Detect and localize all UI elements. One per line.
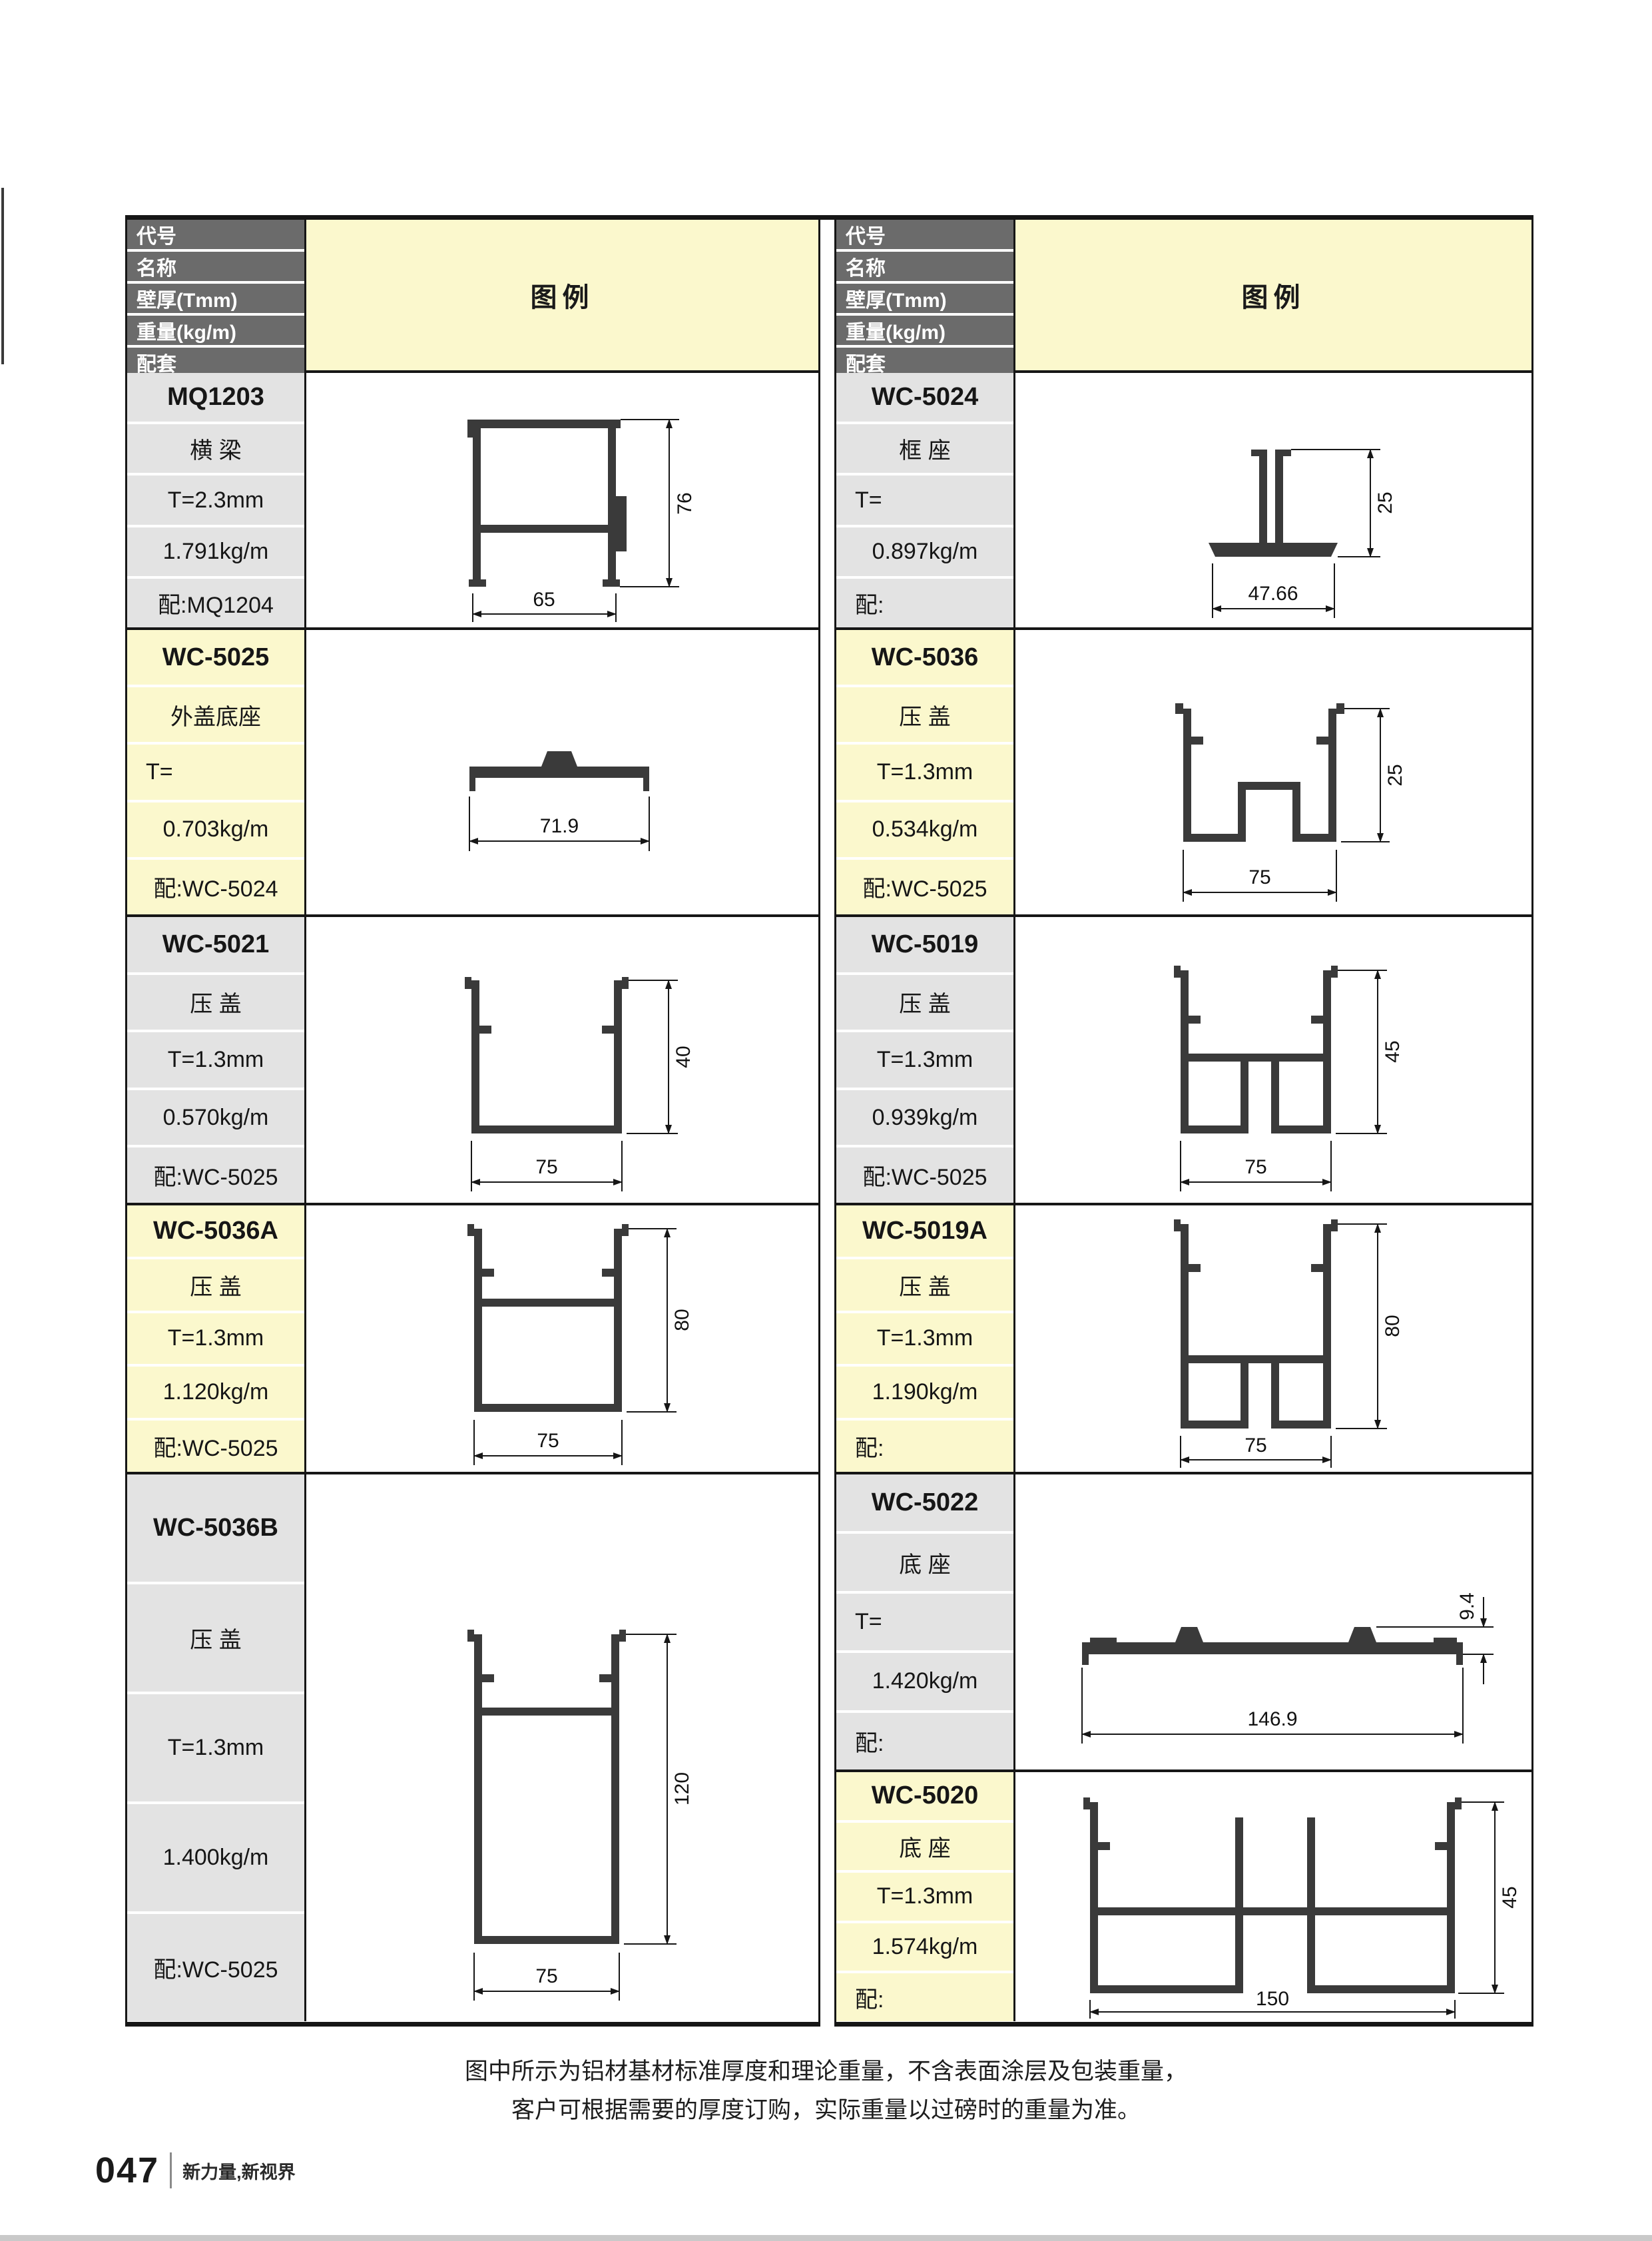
product-code: MQ1203 bbox=[127, 373, 304, 422]
product-row-wc5021: WC-5021 压 盖 T=1.3mm 0.570kg/m 配:WC-5025 … bbox=[127, 914, 818, 1203]
product-weight: 1.120kg/m bbox=[127, 1367, 304, 1418]
product-row-wc5019a: WC-5019A 压 盖 T=1.3mm 1.190kg/m 配: bbox=[836, 1203, 1531, 1472]
dim-height-label: 9.4 bbox=[1456, 1592, 1478, 1620]
header-code: 代号 bbox=[127, 220, 304, 249]
dim-height-label: 45 bbox=[1382, 1040, 1404, 1062]
dim-width-label: 71.9 bbox=[540, 815, 579, 837]
footnote-line-2: 客户可根据需要的厚度订购，实际重量以过磅时的重量为准。 bbox=[0, 2091, 1652, 2130]
spec-table-right: 代号 名称 壁厚(Tmm) 重量(kg/m) 配套 图例 WC-5024 框 座… bbox=[834, 215, 1533, 2027]
table-top-border-bridge bbox=[819, 215, 836, 220]
dim-height-label: 80 bbox=[671, 1309, 693, 1331]
product-weight: 0.534kg/m bbox=[836, 802, 1013, 857]
footnote: 图中所示为铝材基材标准厚度和理论重量，不含表面涂层及包装重量， 客户可根据需要的… bbox=[0, 2053, 1652, 2130]
product-name: 压 盖 bbox=[836, 687, 1013, 742]
product-thickness: T=1.3mm bbox=[836, 1313, 1013, 1365]
product-thickness: T= bbox=[127, 745, 304, 799]
header-label-column: 代号 名称 壁厚(Tmm) 重量(kg/m) 配套 bbox=[127, 220, 304, 370]
product-row-wc5019: WC-5019 压 盖 T=1.3mm 0.939kg/m 配:WC-5025 bbox=[836, 914, 1531, 1203]
product-row-wc5024: WC-5024 框 座 T= 0.897kg/m 配: 25 47.6 bbox=[836, 370, 1531, 627]
product-match: 配:WC-5025 bbox=[836, 1147, 1013, 1203]
product-weight: 0.703kg/m bbox=[127, 802, 304, 857]
product-info: WC-5019 压 盖 T=1.3mm 0.939kg/m 配:WC-5025 bbox=[836, 917, 1013, 1203]
product-code: WC-5036 bbox=[836, 630, 1013, 685]
profile-drawing-wc5021: 40 75 bbox=[304, 917, 818, 1203]
product-name: 压 盖 bbox=[127, 1259, 304, 1311]
product-thickness: T=1.3mm bbox=[836, 745, 1013, 799]
dim-height-label: 25 bbox=[1374, 491, 1396, 513]
product-code: WC-5022 bbox=[836, 1474, 1013, 1531]
product-info: WC-5021 压 盖 T=1.3mm 0.570kg/m 配:WC-5025 bbox=[127, 917, 304, 1203]
product-info: WC-5019A 压 盖 T=1.3mm 1.190kg/m 配: bbox=[836, 1205, 1013, 1472]
dim-width-label: 75 bbox=[535, 1965, 557, 1987]
product-code: WC-5024 bbox=[836, 373, 1013, 422]
product-row-wc5036b: WC-5036B 压 盖 T=1.3mm 1.400kg/m 配:WC-5025… bbox=[127, 1472, 818, 2021]
profile-drawing-wc5019: 45 75 bbox=[1013, 917, 1531, 1203]
product-name: 外盖底座 bbox=[127, 687, 304, 742]
product-code: WC-5019 bbox=[836, 917, 1013, 972]
product-name: 压 盖 bbox=[127, 1584, 304, 1692]
product-match: 配:MQ1204 bbox=[127, 579, 304, 627]
product-thickness: T=2.3mm bbox=[127, 476, 304, 524]
product-weight: 0.939kg/m bbox=[836, 1090, 1013, 1145]
product-match: 配:WC-5025 bbox=[127, 1147, 304, 1203]
product-code: WC-5020 bbox=[836, 1772, 1013, 1820]
header-code: 代号 bbox=[836, 220, 1013, 249]
product-thickness: T=1.3mm bbox=[127, 1313, 304, 1365]
spec-table-left: 代号 名称 壁厚(Tmm) 重量(kg/m) 配套 图例 MQ1203 横 梁 … bbox=[125, 215, 820, 2027]
product-row-wc5036: WC-5036 压 盖 T=1.3mm 0.534kg/m 配:WC-5025 bbox=[836, 627, 1531, 914]
profile-drawing-wc5019a: 80 75 bbox=[1013, 1205, 1531, 1472]
product-code: WC-5036A bbox=[127, 1205, 304, 1257]
product-name: 横 梁 bbox=[127, 424, 304, 473]
product-thickness: T= bbox=[836, 476, 1013, 524]
header-thickness: 壁厚(Tmm) bbox=[836, 284, 1013, 313]
product-thickness: T=1.3mm bbox=[836, 1032, 1013, 1088]
product-name: 压 盖 bbox=[127, 975, 304, 1030]
dim-width-label: 65 bbox=[533, 589, 555, 611]
footer-divider bbox=[170, 2152, 172, 2188]
product-weight: 1.400kg/m bbox=[127, 1804, 304, 1911]
product-name: 压 盖 bbox=[836, 975, 1013, 1030]
header-label-column: 代号 名称 壁厚(Tmm) 重量(kg/m) 配套 bbox=[836, 220, 1013, 370]
product-thickness: T= bbox=[836, 1594, 1013, 1650]
header-name: 名称 bbox=[836, 252, 1013, 281]
dim-height-label: 25 bbox=[1384, 764, 1406, 786]
profile-drawing-wc5036a: 80 75 bbox=[304, 1205, 818, 1472]
product-row-wc5022: WC-5022 底 座 T= 1.420kg/m 配: 9.4 bbox=[836, 1472, 1531, 1769]
product-info: WC-5036B 压 盖 T=1.3mm 1.400kg/m 配:WC-5025 bbox=[127, 1474, 304, 2021]
product-match: 配: bbox=[836, 1713, 1013, 1769]
product-info: WC-5024 框 座 T= 0.897kg/m 配: bbox=[836, 373, 1013, 627]
product-info: MQ1203 横 梁 T=2.3mm 1.791kg/m 配:MQ1204 bbox=[127, 373, 304, 627]
footer-slogan: 新力量,新视界 bbox=[182, 2158, 296, 2184]
product-match: 配:WC-5025 bbox=[836, 860, 1013, 914]
dim-height-label: 80 bbox=[1382, 1315, 1404, 1337]
page-footer: 047 新力量,新视界 bbox=[95, 2150, 296, 2191]
product-name: 底 座 bbox=[836, 1823, 1013, 1871]
product-match: 配: bbox=[836, 1973, 1013, 2021]
dim-height-label: 76 bbox=[674, 492, 696, 514]
product-thickness: T=1.3mm bbox=[836, 1873, 1013, 1921]
product-weight: 1.574kg/m bbox=[836, 1923, 1013, 1971]
product-row-wc5025: WC-5025 外盖底座 T= 0.703kg/m 配:WC-5024 71.9 bbox=[127, 627, 818, 914]
product-info: WC-5036 压 盖 T=1.3mm 0.534kg/m 配:WC-5025 bbox=[836, 630, 1013, 914]
dim-width-label: 75 bbox=[535, 1156, 557, 1178]
header-legend: 图例 bbox=[304, 220, 818, 370]
dim-width-label: 75 bbox=[537, 1430, 559, 1452]
product-weight: 1.420kg/m bbox=[836, 1653, 1013, 1710]
dim-width-label: 146.9 bbox=[1247, 1708, 1297, 1730]
product-row-mq1203: MQ1203 横 梁 T=2.3mm 1.791kg/m 配:MQ1204 76 bbox=[127, 370, 818, 627]
table-header: 代号 名称 壁厚(Tmm) 重量(kg/m) 配套 图例 bbox=[836, 220, 1531, 370]
product-thickness: T=1.3mm bbox=[127, 1694, 304, 1801]
product-weight: 1.791kg/m bbox=[127, 527, 304, 576]
product-row-wc5036a: WC-5036A 压 盖 T=1.3mm 1.120kg/m 配:WC-5025… bbox=[127, 1203, 818, 1472]
dim-width-label: 75 bbox=[1248, 866, 1270, 888]
product-code: WC-5036B bbox=[127, 1474, 304, 1582]
page-number: 047 bbox=[95, 2150, 159, 2191]
profile-drawing-wc5022: 9.4 146.9 bbox=[1013, 1474, 1531, 1769]
product-thickness: T=1.3mm bbox=[127, 1032, 304, 1088]
header-thickness: 壁厚(Tmm) bbox=[127, 284, 304, 313]
header-weight: 重量(kg/m) bbox=[127, 316, 304, 345]
bottom-edge-bar bbox=[0, 2235, 1652, 2241]
header-weight: 重量(kg/m) bbox=[836, 316, 1013, 345]
dim-width-label: 47.66 bbox=[1248, 583, 1298, 605]
profile-drawing-wc5025: 71.9 bbox=[304, 630, 818, 914]
dim-height-label: 40 bbox=[673, 1046, 694, 1068]
dim-width-label: 75 bbox=[1244, 1156, 1266, 1178]
product-match: 配: bbox=[836, 1421, 1013, 1472]
header-legend: 图例 bbox=[1013, 220, 1531, 370]
product-weight: 0.570kg/m bbox=[127, 1090, 304, 1145]
product-info: WC-5025 外盖底座 T= 0.703kg/m 配:WC-5024 bbox=[127, 630, 304, 914]
product-code: WC-5021 bbox=[127, 917, 304, 972]
product-match: 配:WC-5024 bbox=[127, 860, 304, 914]
product-match: 配:WC-5025 bbox=[127, 1914, 304, 2021]
header-name: 名称 bbox=[127, 252, 304, 281]
dim-width-label: 150 bbox=[1256, 1988, 1289, 2010]
profile-drawing-wc5036b: 120 75 bbox=[304, 1474, 818, 2021]
product-name: 底 座 bbox=[836, 1534, 1013, 1590]
product-code: WC-5025 bbox=[127, 630, 304, 685]
dim-height-label: 120 bbox=[671, 1772, 693, 1805]
profile-drawing-wc5024: 25 47.66 bbox=[1013, 373, 1531, 627]
footnote-line-1: 图中所示为铝材基材标准厚度和理论重量，不含表面涂层及包装重量， bbox=[0, 2053, 1652, 2091]
page-edge-mark bbox=[1, 188, 4, 364]
product-weight: 0.897kg/m bbox=[836, 527, 1013, 576]
product-name: 压 盖 bbox=[836, 1259, 1013, 1311]
table-header: 代号 名称 壁厚(Tmm) 重量(kg/m) 配套 图例 bbox=[127, 220, 818, 370]
profile-drawing-wc5020: 45 150 bbox=[1013, 1772, 1531, 2021]
product-info: WC-5022 底 座 T= 1.420kg/m 配: bbox=[836, 1474, 1013, 1769]
product-info: WC-5036A 压 盖 T=1.3mm 1.120kg/m 配:WC-5025 bbox=[127, 1205, 304, 1472]
dim-width-label: 75 bbox=[1244, 1435, 1266, 1456]
product-match: 配:WC-5025 bbox=[127, 1421, 304, 1472]
profile-drawing-mq1203: 76 65 bbox=[304, 373, 818, 627]
product-row-wc5020: WC-5020 底 座 T=1.3mm 1.574kg/m 配: bbox=[836, 1769, 1531, 2021]
product-info: WC-5020 底 座 T=1.3mm 1.574kg/m 配: bbox=[836, 1772, 1013, 2021]
dim-height-label: 45 bbox=[1499, 1886, 1521, 1908]
profile-drawing-wc5036: 25 75 bbox=[1013, 630, 1531, 914]
product-match: 配: bbox=[836, 579, 1013, 627]
product-code: WC-5019A bbox=[836, 1205, 1013, 1257]
product-weight: 1.190kg/m bbox=[836, 1367, 1013, 1418]
product-name: 框 座 bbox=[836, 424, 1013, 473]
